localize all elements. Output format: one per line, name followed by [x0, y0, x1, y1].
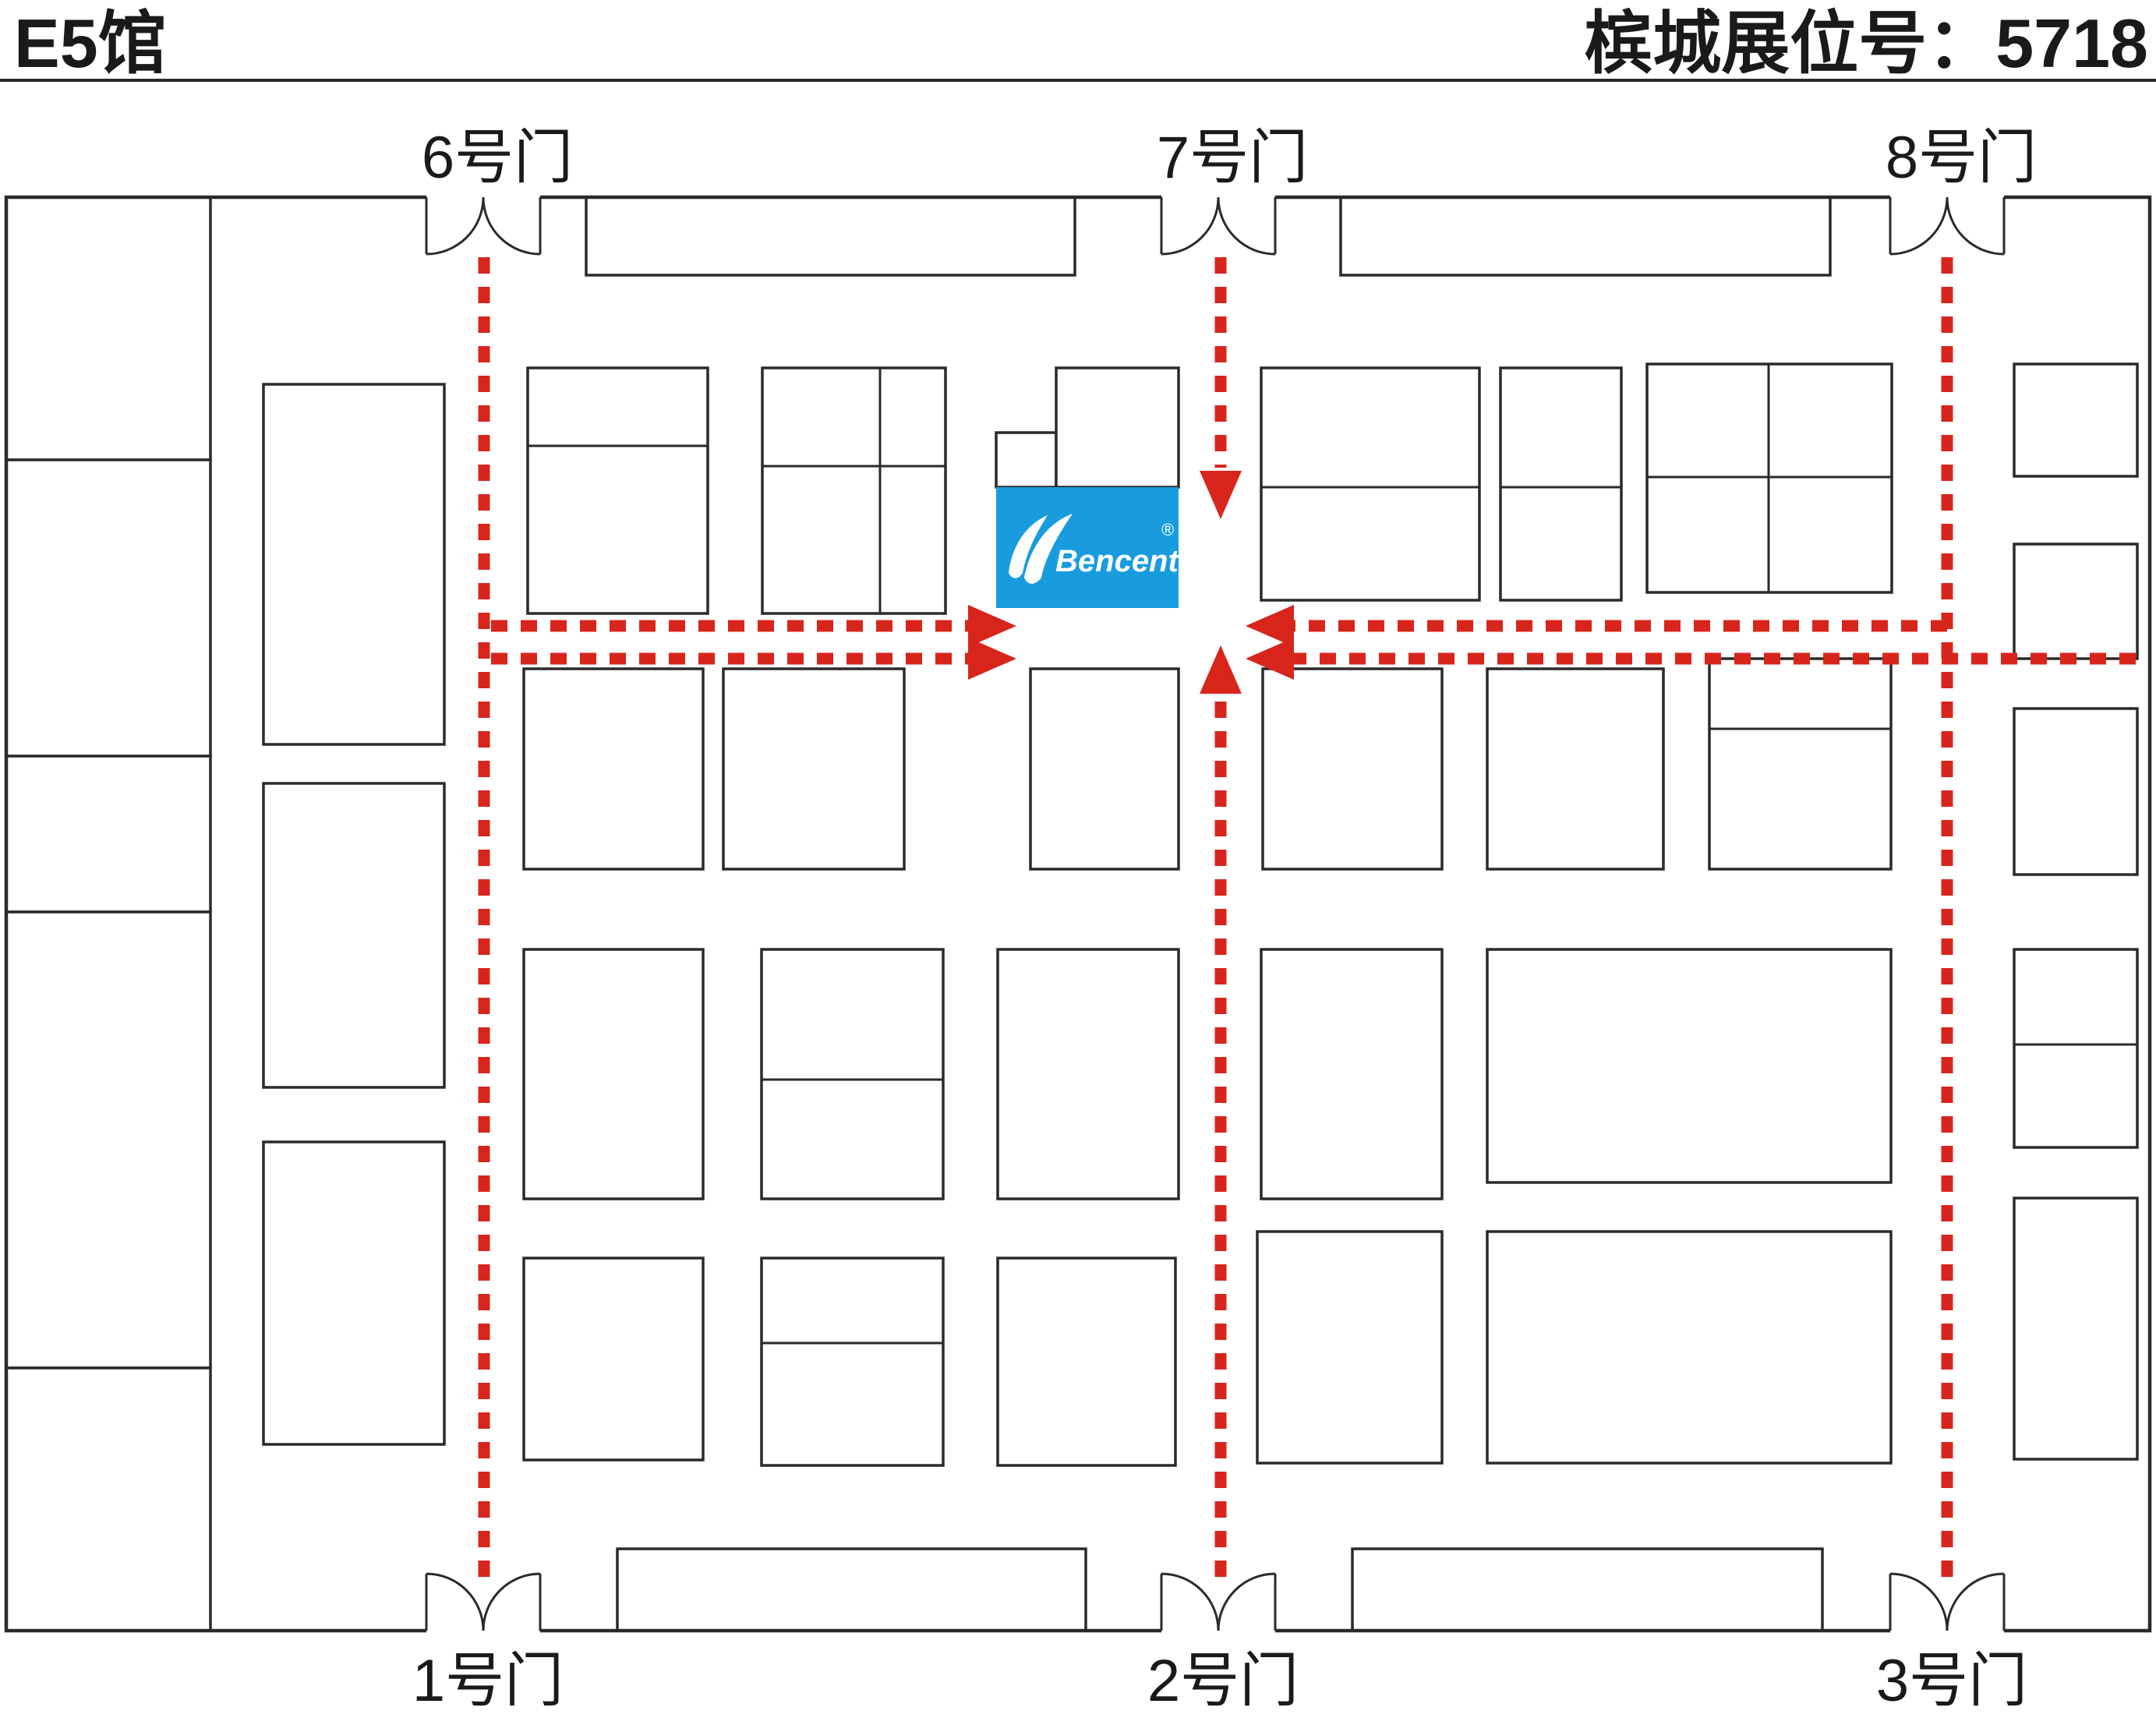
- booth-block: [2014, 544, 2137, 659]
- booth-block: [1352, 1549, 1822, 1631]
- door-8: [1890, 193, 2004, 254]
- booth-block: [617, 1549, 1086, 1631]
- door-7: [1161, 193, 1275, 254]
- hall-title: E5馆: [14, 5, 167, 82]
- booth-block: [2014, 1198, 2137, 1459]
- door-leaf-arc: [1161, 197, 1218, 254]
- booth-block: [2014, 709, 2137, 875]
- door-2: [1161, 1574, 1275, 1635]
- booth-block: [2014, 364, 2137, 476]
- booth-block: [1257, 1232, 1442, 1463]
- booth-block: [1261, 368, 1479, 600]
- booth-block: [723, 669, 904, 869]
- booth-block: [996, 433, 1056, 487]
- door-3: [1890, 1574, 2004, 1635]
- door-label-8: 8号门: [1886, 125, 2037, 191]
- booth-block: [6, 1368, 210, 1631]
- booth-block: [762, 949, 943, 1199]
- booth-block: [263, 783, 444, 1087]
- booth-block: [6, 197, 210, 460]
- booth-block: [1709, 659, 1891, 869]
- booth-block: [762, 368, 945, 613]
- door-1: [426, 1574, 540, 1635]
- rooms-layer: [6, 197, 2137, 1631]
- route-right-upper-to-booth-arrowhead: [1246, 605, 1294, 647]
- booth-block: [6, 912, 210, 1368]
- booth-block: [524, 1258, 703, 1460]
- booth-block: [524, 949, 703, 1199]
- booth-layer: Bencent®: [996, 487, 1179, 608]
- door-label-7: 7号门: [1157, 125, 1308, 191]
- booth-block: [1056, 368, 1179, 487]
- route-door-7-down-to-booth-arrowhead: [1200, 471, 1242, 519]
- booth-block: [1263, 669, 1442, 869]
- booth-block: [1487, 1232, 1891, 1463]
- door-leaf-arc: [1947, 1574, 2004, 1631]
- door-label-3: 3号门: [1876, 1648, 2027, 1714]
- door-leaf-arc: [1890, 1574, 1947, 1631]
- booth-block: [528, 368, 708, 613]
- route-left-lower-to-booth-arrowhead: [968, 638, 1016, 680]
- door-6: [426, 193, 540, 254]
- booth-block: [263, 1142, 444, 1444]
- booth-block: [998, 949, 1179, 1199]
- door-label-6: 6号门: [422, 125, 573, 191]
- booth-block: [998, 1258, 1175, 1465]
- door-leaf-arc: [426, 1574, 483, 1631]
- booth-block: [6, 460, 210, 756]
- booth-block: [762, 1258, 943, 1465]
- door-leaf-arc: [483, 1574, 540, 1631]
- booth-block: [263, 384, 444, 744]
- booth-block: [1261, 949, 1442, 1199]
- booth-block: [1487, 949, 1891, 1182]
- booth-number-title: 槟城展位号：5718: [1584, 5, 2148, 82]
- route-left-upper-to-booth-arrowhead: [968, 605, 1016, 647]
- door-leaf-arc: [426, 197, 483, 254]
- bencent-logo-text: Bencent: [1055, 544, 1179, 578]
- floorplan-canvas: E5馆 槟城展位号：5718 Bencent® 6号门7号门8号门1号门2号门3…: [0, 0, 2156, 1728]
- booth-block: [6, 756, 210, 912]
- booth-block: [524, 669, 703, 869]
- door-leaf-arc: [1947, 197, 2004, 254]
- route-door-2-up-to-booth-arrowhead: [1200, 645, 1242, 694]
- door-leaf-arc: [1218, 1574, 1275, 1631]
- door-label-2: 2号门: [1147, 1648, 1299, 1714]
- booth-block: [1030, 669, 1179, 869]
- booth-block: [2014, 949, 2137, 1147]
- door-leaf-arc: [1218, 197, 1275, 254]
- booth-block: [1341, 197, 1830, 275]
- booth-block: [586, 197, 1075, 275]
- door-leaf-arc: [483, 197, 540, 254]
- booth-block: [1487, 669, 1663, 869]
- door-leaf-arc: [1890, 197, 1947, 254]
- door-leaf-arc: [1161, 1574, 1218, 1631]
- registered-trademark-symbol: ®: [1161, 520, 1174, 539]
- door-label-1: 1号门: [412, 1648, 564, 1714]
- floorplan-page: E5馆 槟城展位号：5718 Bencent® 6号门7号门8号门1号门2号门3…: [0, 0, 2156, 1732]
- booth-block: [1500, 368, 1621, 600]
